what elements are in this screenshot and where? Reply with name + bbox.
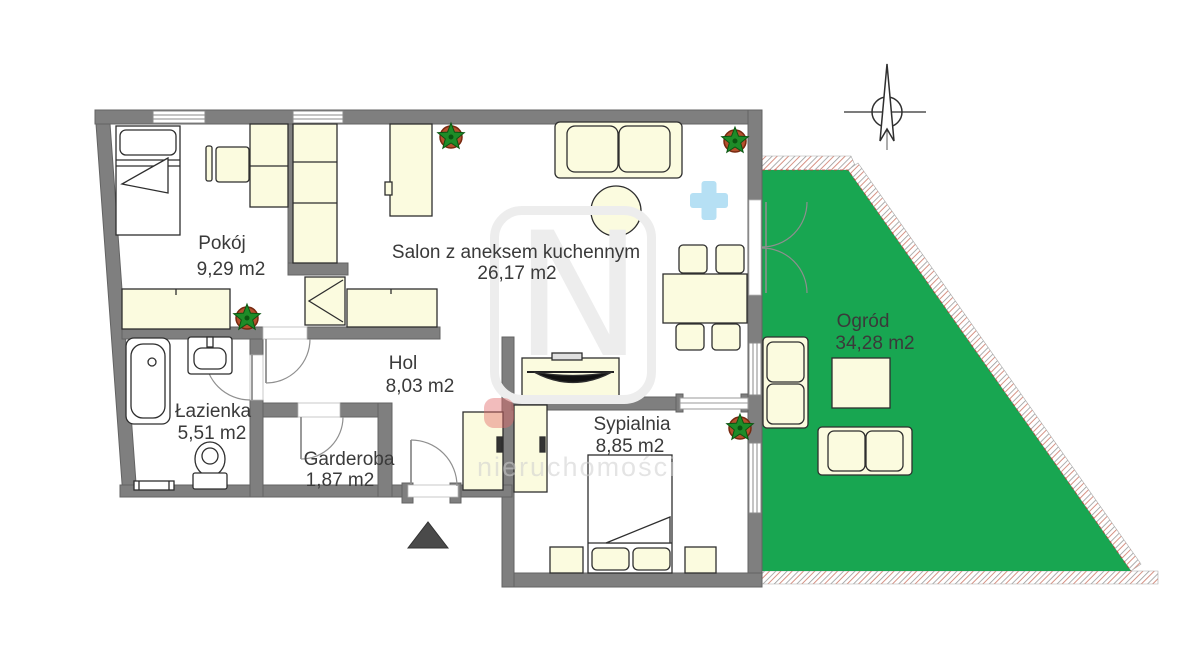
window-sypialnia-garden: [749, 443, 761, 513]
window-pokoj: [153, 111, 205, 123]
garden-table: [832, 358, 890, 408]
garden-hatch-top: [760, 156, 857, 170]
floorplan-canvas: N nieruchomości Pokój 9,29 m2 Salon z an…: [0, 0, 1200, 661]
wall-bedroom-left: [502, 337, 514, 587]
room-label-lazienka-area: 5,51 m2: [178, 424, 247, 445]
bed-pillow: [633, 548, 670, 570]
kitchen-counter-north: [390, 124, 432, 216]
north-arrow-icon: [844, 64, 926, 150]
wall-garderoba-top-left: [263, 403, 298, 417]
floorplan-drawing: [0, 0, 1200, 661]
room-label-hol-area: 8,03 m2: [386, 377, 455, 398]
bed-pillow: [120, 130, 176, 155]
window-salon-garden: [749, 343, 761, 395]
wall-bedroom-bottom: [502, 573, 762, 587]
plant-icon: [234, 304, 261, 329]
desk: [216, 147, 249, 182]
fridge: [305, 277, 345, 325]
garden-lawn: [762, 170, 1131, 571]
wall-bathroom-right-b: [250, 400, 263, 497]
plus-icon: [690, 181, 728, 220]
garden-hatch-bottom: [762, 571, 1158, 584]
hol-furniture: [463, 412, 503, 490]
sypialnia-opening: [680, 398, 748, 409]
room-label-sypialnia-name: Sypialnia: [593, 415, 670, 436]
desk-chair: [206, 146, 212, 181]
pokoj-furniture: [116, 124, 288, 329]
kitchen-furniture: [293, 124, 437, 327]
garden-area: [760, 156, 1158, 584]
room-label-sypialnia-area: 8,85 m2: [596, 437, 665, 458]
room-label-salon-area: 26,17 m2: [477, 264, 556, 285]
dining-chair: [679, 245, 707, 273]
nightstand-left: [550, 547, 583, 573]
nightstand-right: [685, 547, 716, 573]
pokoj-door: [263, 327, 310, 383]
kitchen-counter-south: [347, 289, 437, 327]
plant-icon: [722, 127, 749, 152]
round-table: [591, 186, 641, 236]
room-label-garderoba-name: Garderoba: [304, 450, 395, 471]
room-label-garderoba-area: 1,87 m2: [306, 471, 375, 492]
room-label-salon-name: Salon z aneksem kuchennym: [392, 243, 640, 264]
kitchen-tall-units: [293, 124, 337, 263]
wall-bathroom-right-a: [250, 339, 263, 355]
window-kitchen: [293, 111, 343, 123]
entrance-door: [408, 440, 458, 497]
wall-kitchen-stub: [288, 263, 348, 275]
room-label-pokoj-name: Pokój: [198, 234, 246, 255]
room-label-pokoj-area: 9,29 m2: [197, 260, 266, 281]
room-label-ogrod-name: Ogród: [837, 312, 890, 333]
dining-chair: [676, 324, 704, 350]
wall-salon-hol: [307, 327, 440, 339]
dining-chair: [712, 324, 740, 350]
bath-mat: [134, 481, 174, 490]
room-label-ogrod-area: 34,28 m2: [835, 334, 914, 355]
room-label-lazienka-name: Łazienka: [175, 402, 251, 423]
room-label-hol-name: Hol: [389, 354, 418, 375]
entrance-triangle-icon: [408, 522, 448, 548]
bed-pillow: [592, 548, 629, 570]
plant-icon: [438, 123, 465, 148]
dining-table: [663, 274, 747, 323]
dining-chair: [716, 245, 744, 273]
